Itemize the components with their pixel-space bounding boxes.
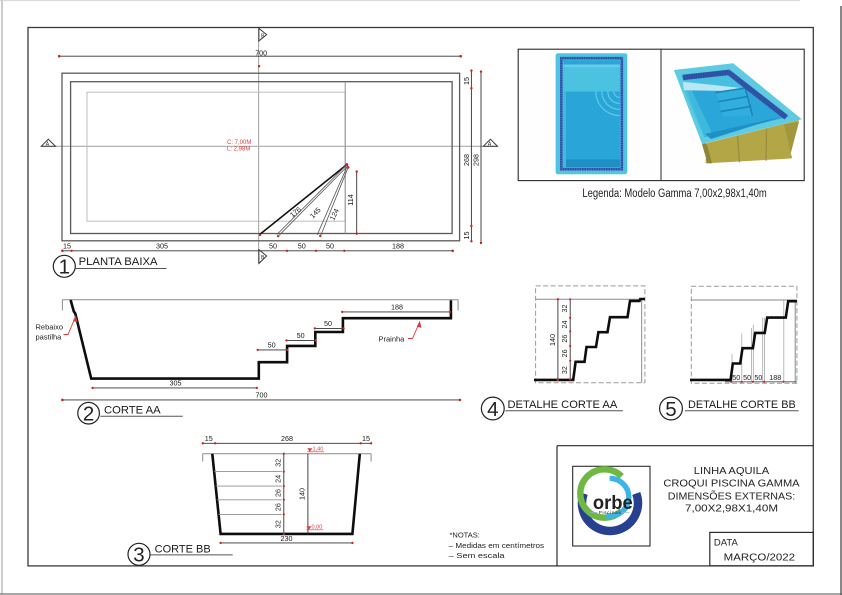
svg-text:DIMENSÕES EXTERNAS:: DIMENSÕES EXTERNAS: <box>668 489 795 502</box>
svg-text:700: 700 <box>255 48 267 57</box>
svg-text:3: 3 <box>133 544 144 567</box>
svg-text:2: 2 <box>83 403 94 426</box>
svg-text:5: 5 <box>665 398 676 421</box>
svg-text:15: 15 <box>462 77 471 85</box>
svg-text:140: 140 <box>548 334 557 346</box>
svg-text:Prainha: Prainha <box>379 335 406 344</box>
svg-text:700: 700 <box>256 391 268 400</box>
svg-text:268: 268 <box>281 434 293 443</box>
svg-text:114: 114 <box>346 194 355 205</box>
svg-text:15: 15 <box>63 242 71 251</box>
svg-text:305: 305 <box>170 379 182 388</box>
svg-text:15: 15 <box>462 232 471 240</box>
svg-text:230: 230 <box>281 534 293 543</box>
svg-text:1,40: 1,40 <box>313 446 324 452</box>
svg-text:pastilha: pastilha <box>36 333 63 342</box>
svg-text:DETALHE CORTE AA: DETALHE CORTE AA <box>508 399 619 411</box>
svg-text:188: 188 <box>769 373 781 382</box>
svg-text:LINHA AQUILA: LINHA AQUILA <box>694 466 770 477</box>
svg-text:50: 50 <box>298 242 306 251</box>
svg-text:Piscinas: Piscinas <box>599 510 622 516</box>
svg-text:0,00: 0,00 <box>312 524 323 530</box>
svg-text:CORTE BB: CORTE BB <box>155 543 211 555</box>
svg-text:MARÇO/2022: MARÇO/2022 <box>724 552 796 563</box>
svg-text:26: 26 <box>273 503 282 511</box>
svg-text:298: 298 <box>471 154 480 166</box>
svg-text:50: 50 <box>743 373 751 382</box>
svg-text:188: 188 <box>391 303 403 312</box>
svg-text:7,00X2,98X1,40M: 7,00X2,98X1,40M <box>685 504 778 515</box>
svg-text:4: 4 <box>487 398 498 421</box>
svg-text:15: 15 <box>362 434 370 443</box>
svg-text:L: 2,98M: L: 2,98M <box>227 147 250 153</box>
svg-text:Legenda: Modelo Gamma 7,00x: Legenda: Modelo Gamma 7,00x2,98x1,40m <box>582 188 766 200</box>
svg-text:32: 32 <box>273 459 282 467</box>
svg-text:32: 32 <box>560 366 569 374</box>
svg-text:*NOTAS:: *NOTAS: <box>450 531 480 540</box>
svg-text:PLANTA BAIXA: PLANTA BAIXA <box>79 256 159 268</box>
svg-text:Rebaixo: Rebaixo <box>36 323 64 332</box>
svg-text:305: 305 <box>156 242 168 251</box>
svg-text:15: 15 <box>205 434 213 443</box>
svg-text:24: 24 <box>273 475 282 483</box>
svg-text:50: 50 <box>297 331 305 340</box>
svg-text:50: 50 <box>754 373 762 382</box>
svg-text:50: 50 <box>732 373 740 382</box>
svg-text:32: 32 <box>273 520 282 528</box>
svg-text:26: 26 <box>273 489 282 497</box>
svg-text:– Medidas em centímetros: – Medidas em centímetros <box>449 541 545 550</box>
svg-text:CROQUI PISCINA GAMMA: CROQUI PISCINA GAMMA <box>663 479 800 490</box>
svg-text:24: 24 <box>560 321 569 329</box>
svg-text:26: 26 <box>560 349 569 357</box>
svg-text:32: 32 <box>560 305 569 313</box>
svg-text:– Sem escala: – Sem escala <box>449 551 506 560</box>
svg-text:50: 50 <box>324 319 332 328</box>
svg-text:268: 268 <box>462 154 471 166</box>
svg-text:50: 50 <box>268 341 276 350</box>
svg-text:188: 188 <box>392 242 404 251</box>
svg-text:DETALHE CORTE BB: DETALHE CORTE BB <box>688 399 796 411</box>
svg-text:140: 140 <box>298 488 307 500</box>
svg-text:26: 26 <box>560 335 569 343</box>
svg-text:50: 50 <box>326 242 334 251</box>
svg-text:CORTE AA: CORTE AA <box>104 405 162 417</box>
svg-text:C: 7,00M: C: 7,00M <box>227 140 251 146</box>
svg-text:50: 50 <box>269 242 277 251</box>
svg-text:DATA: DATA <box>714 537 739 548</box>
svg-text:1: 1 <box>59 256 70 279</box>
